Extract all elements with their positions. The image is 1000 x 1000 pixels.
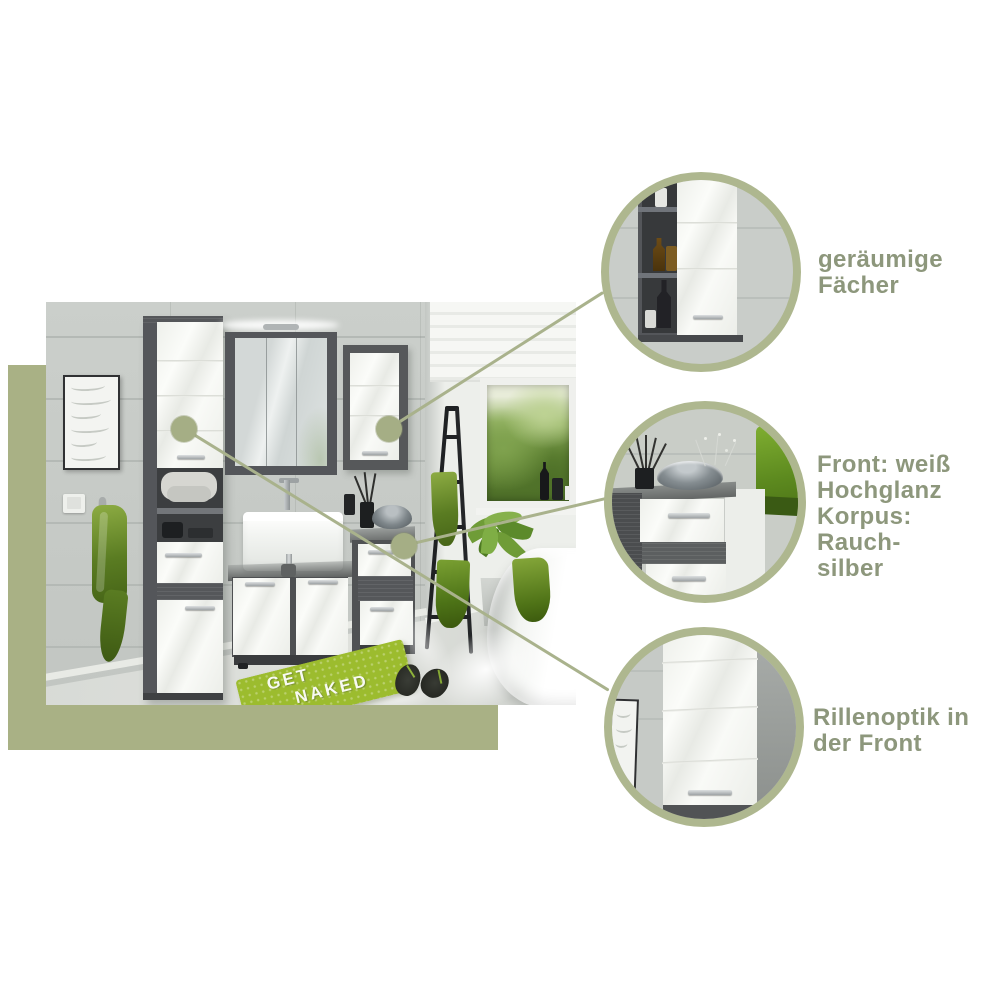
rauchsilber-band (358, 576, 413, 601)
callout-label-groove: Rillenoptik in der Front (813, 705, 969, 757)
door-handle (245, 582, 275, 586)
cabinet-side (612, 493, 642, 595)
product-infographic: GET NAKED (0, 0, 1000, 1000)
door-handle (693, 315, 723, 319)
callout-circle-material (604, 401, 806, 603)
tall-cabinet-lower-door (157, 600, 223, 693)
closeup-lower-drawer (646, 564, 726, 595)
plinth (143, 693, 223, 700)
open-shelf-section (157, 468, 223, 542)
shelf-board (638, 207, 677, 212)
cabinet-carcass (638, 180, 677, 341)
tall-cabinet (143, 316, 223, 700)
ladder-rung (445, 435, 459, 439)
label-line: Rillenoptik in (813, 705, 969, 731)
label-line: Korpus: Rauch- (817, 504, 1000, 556)
tall-cabinet-drawer (157, 542, 223, 583)
label-line: silber (817, 556, 1000, 582)
hanging-cabinet (343, 345, 408, 470)
rauchsilber-band (642, 542, 726, 564)
callout-label-material: Front: weiß Hochglanz Korpus: Rauch- sil… (817, 452, 1000, 582)
door-handle (308, 580, 338, 584)
diffuser-stick (645, 435, 647, 472)
drawer-handle (668, 513, 710, 518)
bathroom-photo: GET NAKED (46, 302, 576, 705)
wall-poster (63, 375, 120, 470)
cabinet-foot (238, 663, 248, 669)
label-line: Front: weiß (817, 452, 1000, 478)
amber-bottle-icon (666, 246, 677, 271)
door-handle (688, 790, 732, 795)
callout-circle-groove (604, 627, 804, 827)
closeup-cabinet-door (677, 180, 737, 335)
shelf-board (157, 508, 223, 514)
closeup-groove-door (663, 635, 757, 805)
rauchsilber-band (157, 583, 223, 600)
white-panel (724, 489, 765, 595)
callout-label-shelves: geräumige Fächer (818, 247, 943, 299)
cabinet-frame (225, 332, 337, 475)
undersink-left-door (233, 578, 290, 655)
drawer-handle (165, 553, 202, 557)
undersink-right-door (296, 578, 348, 655)
wall-right-shaded (757, 635, 796, 819)
door-handle (370, 607, 394, 611)
label-line: Hochglanz (817, 478, 1000, 504)
label-line: geräumige (818, 247, 943, 273)
roman-blind (430, 302, 576, 382)
decor-bowl (372, 505, 412, 529)
sprig (714, 435, 718, 465)
mirror-cabinet (225, 330, 337, 475)
diffuser-vase (635, 468, 654, 489)
anchor-dot-hanging-cabinet (376, 416, 402, 442)
soap-dispenser-icon (344, 494, 355, 515)
callout-circle-shelves (601, 172, 801, 372)
light-fixture-icon (263, 324, 299, 330)
shelf-board (638, 273, 677, 278)
label-line: Fächer (818, 273, 943, 299)
white-jar-icon (645, 310, 656, 328)
door-handle (177, 455, 205, 459)
glass-bowl (657, 461, 723, 490)
rolled-towels (167, 486, 211, 502)
undersink-cabinet (228, 563, 352, 670)
dark-object (188, 528, 213, 538)
cabinet-bottom-board (638, 335, 743, 342)
door-handle (185, 606, 215, 610)
light-switch (63, 494, 85, 513)
label-line: der Front (813, 731, 969, 757)
poster-edge (607, 699, 639, 813)
shadow-below-door (663, 805, 757, 819)
drawer-handle (672, 576, 706, 581)
mirror-doors (235, 338, 327, 466)
black-jar-icon (162, 522, 183, 538)
white-bottle-icon (655, 188, 667, 207)
bottle-icon (552, 478, 563, 500)
anchor-dot-tall-cabinet (171, 416, 197, 442)
cosmetic-tube-icon (565, 486, 570, 500)
anchor-dot-side-cabinet (391, 533, 417, 559)
door-handle (362, 451, 388, 455)
hanging-cabinet-door (350, 353, 399, 460)
closeup-drawer (640, 499, 724, 542)
